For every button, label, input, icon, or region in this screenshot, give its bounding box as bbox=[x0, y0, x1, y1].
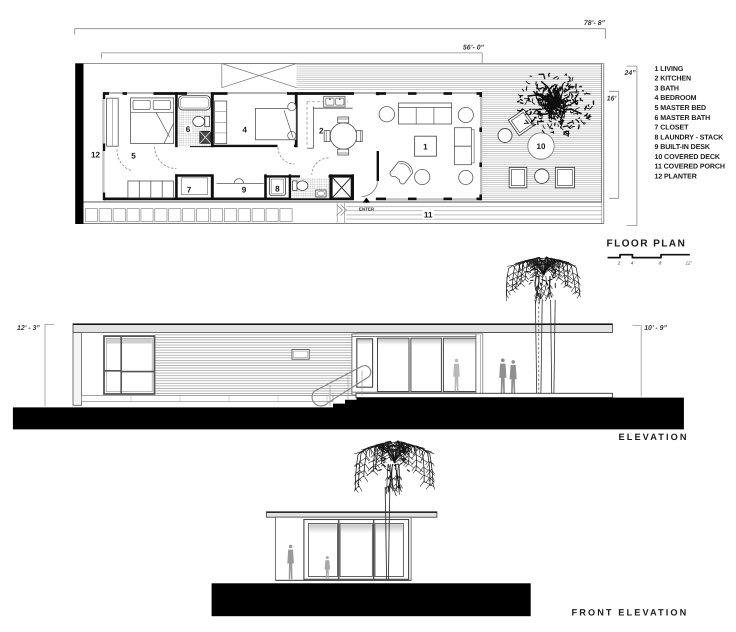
svg-text:FLOOR PLAN: FLOOR PLAN bbox=[607, 239, 687, 250]
svg-text:5: 5 bbox=[131, 151, 136, 160]
svg-text:ELEVATION: ELEVATION bbox=[619, 432, 689, 442]
svg-text:7 CLOSET: 7 CLOSET bbox=[655, 125, 690, 132]
svg-text:16’: 16’ bbox=[607, 96, 617, 103]
svg-text:1: 1 bbox=[423, 142, 428, 151]
svg-text:8 LAUNDRY - STACK: 8 LAUNDRY - STACK bbox=[655, 134, 725, 141]
svg-text:56’- 0”: 56’- 0” bbox=[463, 45, 485, 52]
svg-text:10 COVERED DECK: 10 COVERED DECK bbox=[655, 154, 721, 161]
svg-text:4 BEDROOM: 4 BEDROOM bbox=[655, 95, 697, 102]
svg-text:12’ - 3”: 12’ - 3” bbox=[17, 325, 40, 332]
svg-text:9: 9 bbox=[242, 185, 247, 194]
svg-text:2 KITCHEN: 2 KITCHEN bbox=[655, 76, 691, 83]
svg-text:78’- 8”: 78’- 8” bbox=[584, 20, 606, 27]
svg-text:10’ - 9”: 10’ - 9” bbox=[644, 325, 667, 332]
svg-text:ENTER: ENTER bbox=[359, 206, 374, 211]
svg-text:2: 2 bbox=[319, 126, 324, 135]
svg-text:6 MASTER BATH: 6 MASTER BATH bbox=[655, 115, 711, 122]
svg-text:7: 7 bbox=[187, 185, 192, 194]
svg-text:3 BATH: 3 BATH bbox=[655, 86, 679, 93]
svg-text:4: 4 bbox=[242, 126, 247, 135]
svg-text:FRONT ELEVATION: FRONT ELEVATION bbox=[572, 608, 689, 618]
svg-text:6: 6 bbox=[186, 125, 191, 134]
svg-text:5 MASTER BED: 5 MASTER BED bbox=[655, 105, 707, 112]
svg-text:4’: 4’ bbox=[631, 260, 635, 265]
svg-text:11 COVERED PORCH: 11 COVERED PORCH bbox=[655, 164, 725, 171]
svg-text:1 LIVING: 1 LIVING bbox=[655, 66, 684, 73]
svg-text:24”: 24” bbox=[624, 70, 637, 77]
svg-text:12 PLANTER: 12 PLANTER bbox=[655, 173, 697, 180]
svg-text:12: 12 bbox=[91, 151, 101, 160]
svg-text:12’: 12’ bbox=[686, 260, 693, 265]
svg-text:9 BUILT-IN DESK: 9 BUILT-IN DESK bbox=[655, 144, 711, 151]
svg-text:8’: 8’ bbox=[659, 260, 663, 265]
svg-text:2’: 2’ bbox=[617, 260, 622, 265]
svg-text:11: 11 bbox=[424, 210, 433, 219]
svg-text:8: 8 bbox=[275, 185, 280, 194]
svg-text:10: 10 bbox=[537, 142, 546, 151]
